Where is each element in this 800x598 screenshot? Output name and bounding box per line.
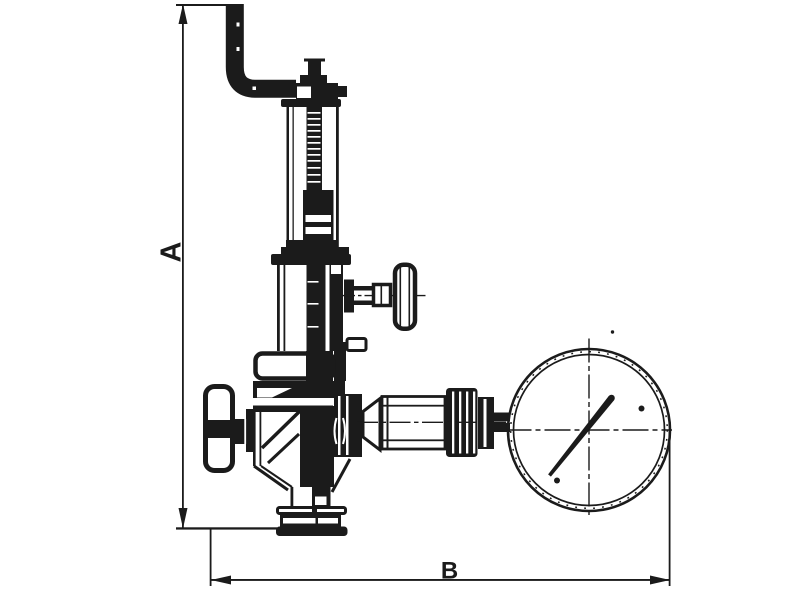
svg-text:A: A	[156, 241, 188, 262]
svg-text:B: B	[441, 558, 458, 585]
